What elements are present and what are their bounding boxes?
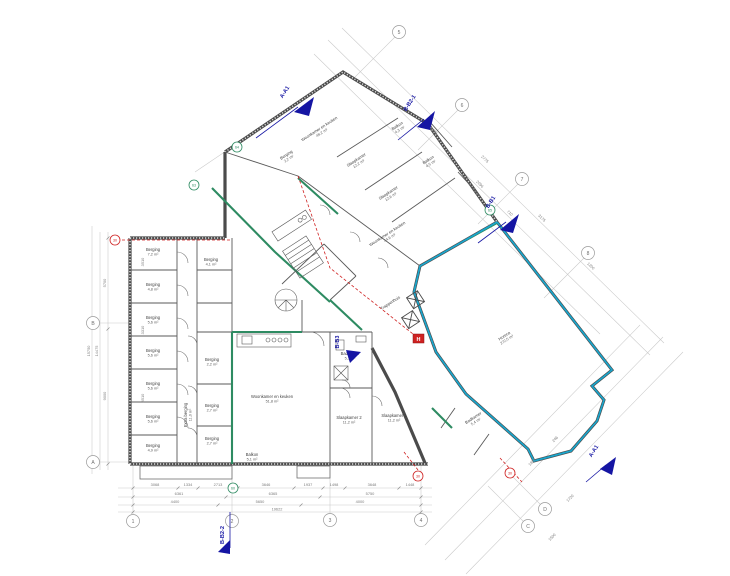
detail-bubbles: 64 63 65 60 [189, 142, 495, 493]
fire-safety-lines [122, 176, 522, 482]
svg-text:9000: 9000 [102, 391, 107, 400]
room-label: Berging4,8 m² [146, 282, 161, 291]
grid-bubble-1: 1 [127, 515, 140, 528]
room-label: Berging4,1 m² [204, 257, 219, 266]
svg-text:14475: 14475 [94, 346, 99, 357]
room-label: Woonkamer en keuken44,6 m² [368, 220, 409, 251]
room-label: Berging2,7 m² [205, 436, 220, 445]
svg-text:4400: 4400 [171, 499, 180, 504]
floor-plan-drawing: H Berging7,2 m² Berging4,8 m² Berging5,6… [0, 0, 730, 576]
svg-text:B-B1: B-B1 [485, 195, 497, 209]
floor-plan-sheet: H Berging7,2 m² Berging4,8 m² Berging5,6… [0, 0, 730, 576]
exterior-walls [130, 72, 612, 464]
svg-text:3175: 3175 [537, 213, 547, 223]
room-label: Balkon5,1 m² [246, 452, 259, 461]
svg-text:D: D [543, 507, 547, 513]
room-label: Berging2,7 m² [205, 403, 220, 412]
svg-text:2713: 2713 [214, 482, 223, 487]
svg-text:5: 5 [398, 30, 401, 36]
room-label: Balkon4,3 m² [391, 120, 407, 135]
svg-text:1200: 1200 [586, 261, 596, 271]
svg-text:1829: 1829 [527, 457, 537, 467]
detail-bubble: 60 [228, 483, 238, 493]
svg-text:6361: 6361 [175, 491, 184, 496]
dimension-ticks [107, 237, 423, 514]
svg-text:30: 30 [416, 475, 420, 479]
staircase [283, 236, 324, 278]
room-label: Woonkamer en keuken48,2 m² [300, 115, 341, 146]
detail-bubble: 63 [189, 180, 199, 190]
grid-bubble-A: A [87, 456, 100, 469]
room-label: Slaapkamer12,6 m² [378, 184, 402, 204]
balcony-outline [140, 466, 330, 479]
svg-text:7: 7 [521, 177, 524, 183]
svg-text:6: 6 [461, 103, 464, 109]
svg-text:4000: 4000 [356, 499, 365, 504]
svg-text:6365: 6365 [269, 491, 278, 496]
svg-text:5700: 5700 [102, 278, 107, 287]
svg-text:246: 246 [551, 435, 559, 443]
dimension-text: 3068 1334 2713 3646 1937 1498 3648 1448 … [86, 126, 596, 542]
fire-bubble: 30 [110, 235, 120, 245]
fire-hose-reel-icon: H [413, 334, 424, 343]
section-marker-a-a1-bottom: A-A1 [586, 444, 616, 482]
room-label: Horeca272,5 m² [497, 329, 515, 345]
svg-text:2: 2 [231, 519, 234, 525]
room-label: Trappenhuis [379, 294, 401, 311]
svg-text:5750: 5750 [366, 491, 375, 496]
grid-bubble-7: 7 [516, 173, 529, 186]
svg-text:4: 4 [420, 518, 423, 524]
svg-text:64: 64 [235, 146, 239, 150]
svg-text:1448: 1448 [406, 482, 415, 487]
room-label: Berging4,9 m² [146, 443, 161, 452]
room-label: Extra berging11,0 m² [183, 402, 192, 427]
svg-text:710: 710 [506, 209, 515, 218]
grid-bubble-5: 5 [393, 26, 406, 39]
fire-bubble: 30 [505, 468, 515, 478]
svg-text:A-A1: A-A1 [588, 444, 600, 458]
svg-text:B-B2-2: B-B2-2 [220, 526, 226, 544]
svg-text:3068: 3068 [151, 482, 160, 487]
svg-text:B-B3: B-B3 [335, 335, 341, 348]
grid-bubble-B: B [87, 317, 100, 330]
grid-bubble-C: C [522, 520, 535, 533]
svg-text:1500: 1500 [547, 532, 557, 542]
svg-text:1498: 1498 [330, 482, 339, 487]
svg-text:1: 1 [132, 519, 135, 525]
grid-bubble-3: 3 [324, 514, 337, 527]
svg-text:63: 63 [192, 184, 196, 188]
detail-bubble: 64 [232, 142, 242, 152]
svg-text:1334: 1334 [184, 482, 193, 487]
fire-rating-bubbles: 30 30 30 [110, 235, 515, 481]
room-label: Woonkamer en keuken51,8 m² [251, 394, 294, 403]
room-label: Berging5,6 m² [146, 381, 161, 390]
svg-text:30: 30 [508, 472, 512, 476]
grid-bubble-2: 2 [226, 515, 239, 528]
svg-text:2096: 2096 [475, 179, 485, 189]
svg-text:1937: 1937 [304, 482, 313, 487]
svg-text:60: 60 [231, 487, 235, 491]
svg-text:8: 8 [587, 251, 590, 257]
svg-text:5650: 5650 [256, 499, 265, 504]
grid-bubble-8: 8 [582, 247, 595, 260]
room-label: Berging2,2 m² [205, 357, 220, 366]
svg-text:B-B2-1: B-B2-1 [403, 94, 418, 112]
svg-text:2775: 2775 [480, 154, 490, 164]
room-label: Balkon4,5 m² [422, 154, 438, 169]
room-label: Berging7,2 m² [146, 247, 161, 256]
room-label: Slaapkamer 111,2 m² [381, 413, 407, 422]
svg-text:3510: 3510 [140, 257, 145, 266]
grid-bubbles: 1 2 3 4 A B C D 5 6 7 8 [87, 26, 595, 533]
room-label: Slaapkamer 211,2 m² [336, 415, 362, 424]
spiral-stair [275, 289, 297, 311]
svg-text:C: C [526, 524, 530, 530]
room-label: Slaapkamer12,2 m² [346, 151, 370, 171]
svg-text:3: 3 [329, 518, 332, 524]
svg-text:19622: 19622 [272, 507, 283, 512]
svg-text:A-A1: A-A1 [279, 85, 291, 99]
svg-text:3310: 3310 [140, 325, 145, 334]
room-label: Berging5,6 m² [146, 414, 161, 423]
svg-text:1720: 1720 [565, 493, 575, 503]
svg-text:30: 30 [113, 239, 117, 243]
grid-bubble-D: D [539, 503, 552, 516]
room-label: Badkamer5,4 m² [464, 410, 485, 428]
svg-text:3648: 3648 [368, 482, 377, 487]
room-label: Berging5,6 m² [146, 315, 161, 324]
kitchen-counter [237, 334, 291, 347]
svg-text:3646: 3646 [262, 482, 271, 487]
fire-bubble: 30 [413, 471, 423, 481]
svg-text:3510: 3510 [140, 393, 145, 402]
room-label: Berging2,2 m² [279, 148, 297, 164]
svg-text:5096: 5096 [429, 126, 439, 136]
svg-text:H: H [417, 337, 421, 343]
grid-bubble-6: 6 [456, 99, 469, 112]
cyan-facade-wall [414, 222, 612, 461]
svg-text:15750: 15750 [86, 345, 91, 357]
grid-bubble-4: 4 [415, 514, 428, 527]
room-label: Berging5,6 m² [146, 348, 161, 357]
